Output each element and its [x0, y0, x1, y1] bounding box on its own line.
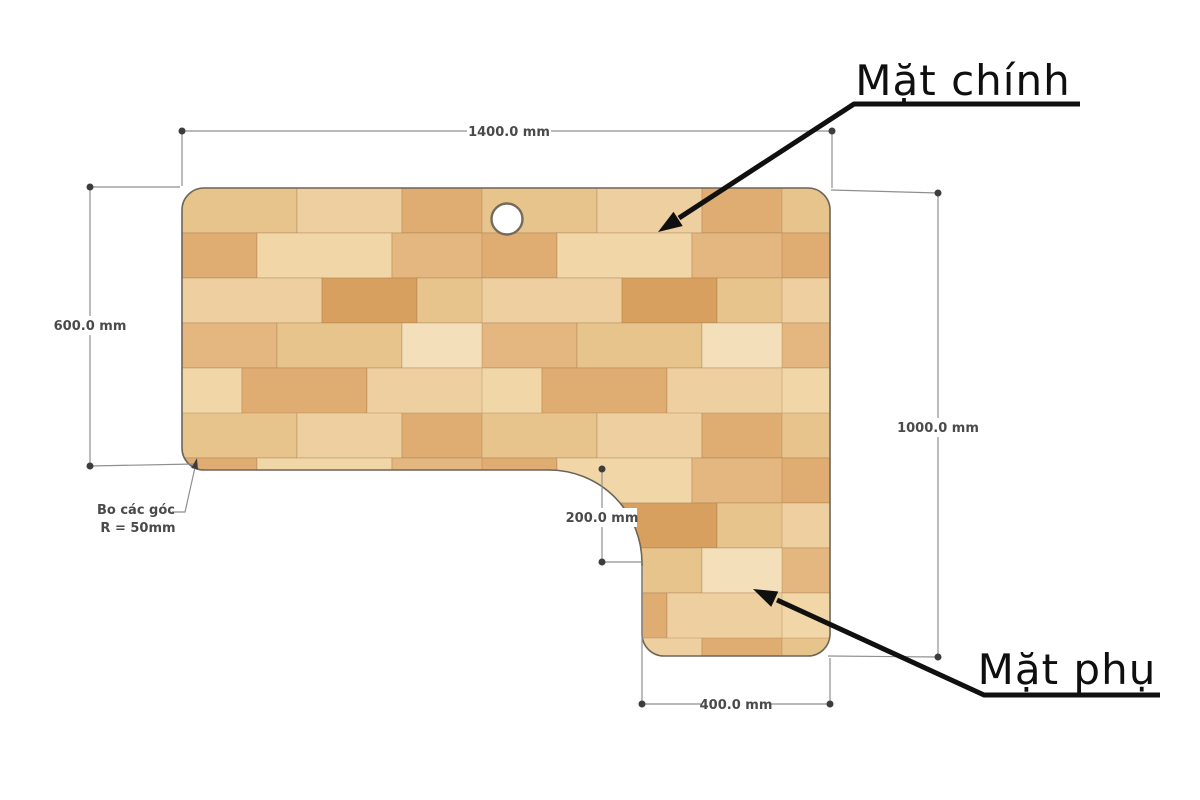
dim-endpoint-dot — [87, 184, 94, 191]
corner-note-leader-line — [172, 463, 196, 512]
dim-endpoint-dot — [179, 128, 186, 135]
dim-inner-corner-label: 200.0 mm — [566, 511, 639, 526]
dim-endpoint-dot — [829, 128, 836, 135]
dim-endpoint-dot — [935, 190, 942, 197]
grommet-hole — [492, 204, 523, 235]
corner-note: Bo các góc R = 50mm — [97, 458, 198, 536]
dim-endpoint-dot — [827, 701, 834, 708]
dim-left-height-label: 600.0 mm — [54, 319, 127, 334]
corner-note-line1: Bo các góc — [97, 503, 175, 518]
desk-drawing-svg: 1400.0 mm 600.0 mm 1000.0 mm 200.0 mm 40… — [0, 0, 1200, 800]
dim-right-ext-top — [831, 190, 938, 193]
desk-surface — [182, 188, 830, 656]
dim-endpoint-dot — [599, 559, 606, 566]
diagram-canvas: 1400.0 mm 600.0 mm 1000.0 mm 200.0 mm 40… — [0, 0, 1200, 800]
main-surface-label: Mặt chính — [855, 56, 1070, 105]
dim-endpoint-dot — [639, 701, 646, 708]
dim-right-height-label: 1000.0 mm — [897, 421, 979, 436]
dim-endpoint-dot — [599, 466, 606, 473]
desk-top — [182, 188, 830, 656]
dim-endpoint-dot — [87, 463, 94, 470]
dim-right-ext-bottom — [828, 656, 938, 657]
dim-endpoint-dot — [935, 654, 942, 661]
secondary-surface-label: Mặt phụ — [978, 645, 1157, 694]
dim-bottom-width-label: 400.0 mm — [700, 698, 773, 713]
dim-left-ext-bottom — [90, 464, 194, 466]
dim-top-width-label: 1400.0 mm — [468, 125, 550, 140]
corner-note-line2: R = 50mm — [100, 521, 175, 536]
